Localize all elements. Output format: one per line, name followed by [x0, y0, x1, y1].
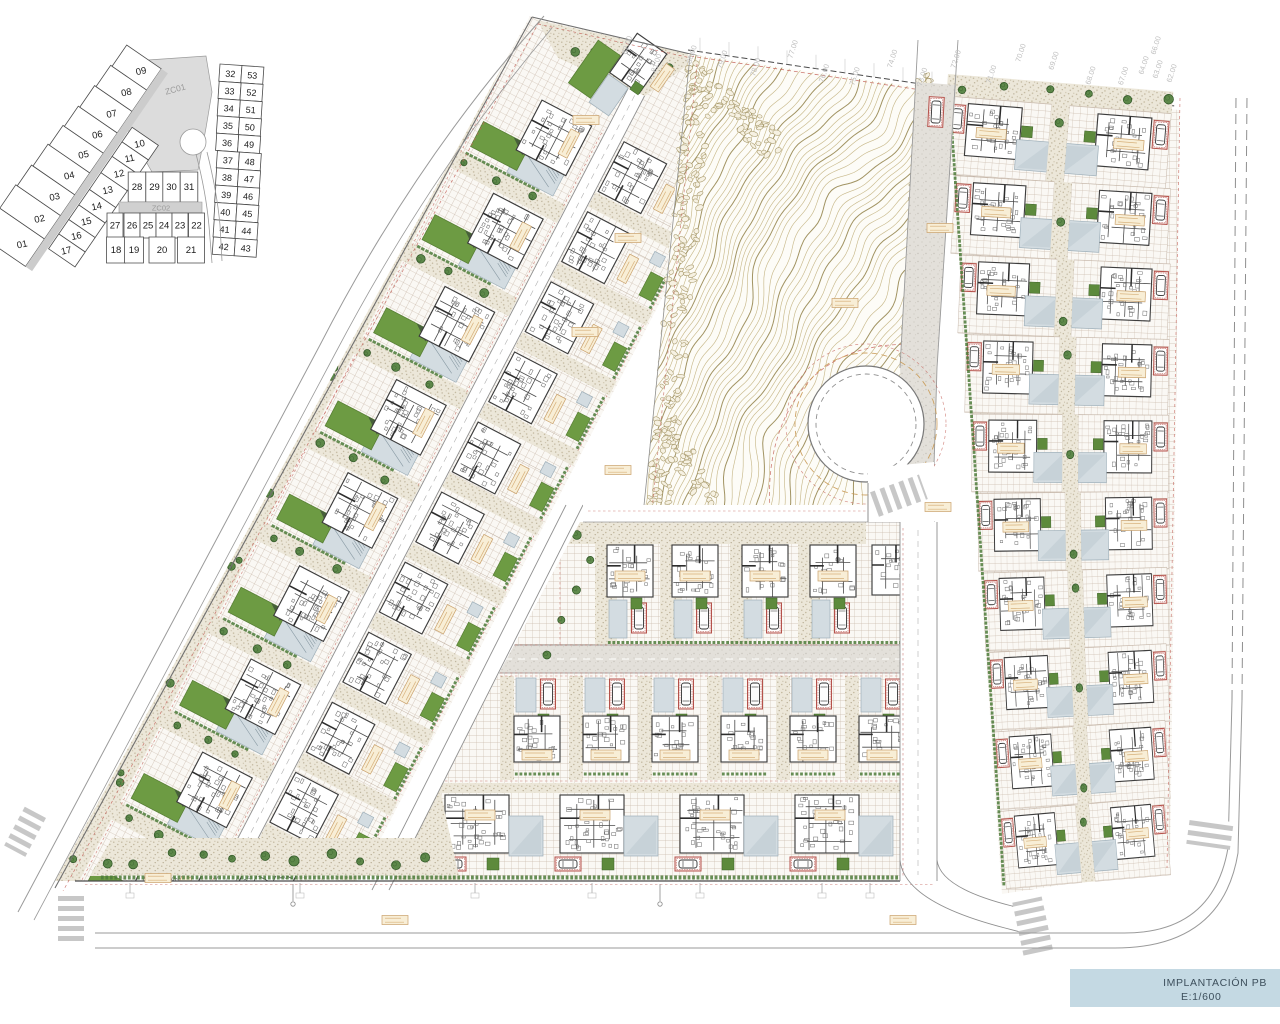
- svg-text:10: 10: [133, 138, 146, 151]
- svg-text:07: 07: [105, 108, 118, 121]
- svg-text:18: 18: [111, 245, 122, 256]
- svg-text:02: 02: [33, 213, 46, 226]
- svg-text:27: 27: [110, 221, 121, 232]
- svg-text:34: 34: [223, 103, 234, 114]
- svg-text:23: 23: [175, 221, 186, 232]
- svg-text:51: 51: [245, 105, 256, 116]
- svg-text:20: 20: [157, 245, 168, 256]
- svg-text:30: 30: [166, 182, 177, 193]
- svg-text:45: 45: [242, 209, 253, 220]
- svg-text:03: 03: [48, 191, 61, 204]
- svg-text:22: 22: [191, 221, 202, 232]
- svg-text:40: 40: [220, 207, 231, 218]
- svg-text:17: 17: [60, 245, 73, 258]
- svg-text:31: 31: [184, 182, 195, 193]
- svg-text:19: 19: [129, 245, 140, 256]
- svg-text:33: 33: [224, 86, 235, 97]
- svg-text:32: 32: [225, 69, 236, 80]
- svg-text:IMPLANTACIÓN PB: IMPLANTACIÓN PB: [1163, 976, 1267, 989]
- svg-text:35: 35: [223, 120, 234, 131]
- svg-text:26: 26: [127, 221, 138, 232]
- svg-text:12: 12: [113, 168, 126, 181]
- svg-text:37: 37: [222, 155, 233, 166]
- svg-text:09: 09: [135, 65, 148, 78]
- svg-text:04: 04: [63, 170, 76, 183]
- svg-text:42: 42: [218, 242, 229, 253]
- svg-text:28: 28: [132, 182, 143, 193]
- svg-text:29: 29: [149, 182, 160, 193]
- svg-text:05: 05: [77, 149, 90, 162]
- svg-text:47: 47: [244, 174, 255, 185]
- svg-text:21: 21: [186, 245, 197, 256]
- svg-text:38: 38: [222, 172, 233, 183]
- svg-text:E:1/600: E:1/600: [1181, 991, 1221, 1003]
- svg-text:53: 53: [247, 70, 258, 81]
- svg-text:48: 48: [244, 157, 255, 168]
- svg-text:ZC02: ZC02: [152, 204, 170, 213]
- svg-text:50: 50: [245, 122, 256, 133]
- svg-text:16: 16: [70, 230, 83, 243]
- svg-text:39: 39: [221, 190, 232, 201]
- svg-text:43: 43: [240, 243, 251, 254]
- svg-text:08: 08: [120, 86, 133, 99]
- svg-text:24: 24: [159, 221, 170, 232]
- svg-text:15: 15: [80, 216, 93, 229]
- svg-text:36: 36: [222, 138, 233, 149]
- svg-text:14: 14: [90, 200, 103, 213]
- svg-text:52: 52: [246, 87, 257, 98]
- svg-text:01: 01: [16, 238, 29, 251]
- svg-text:49: 49: [244, 139, 255, 150]
- svg-text:13: 13: [101, 184, 114, 197]
- svg-text:44: 44: [241, 226, 252, 237]
- svg-text:46: 46: [243, 191, 254, 202]
- svg-text:25: 25: [143, 221, 154, 232]
- svg-text:06: 06: [91, 129, 104, 142]
